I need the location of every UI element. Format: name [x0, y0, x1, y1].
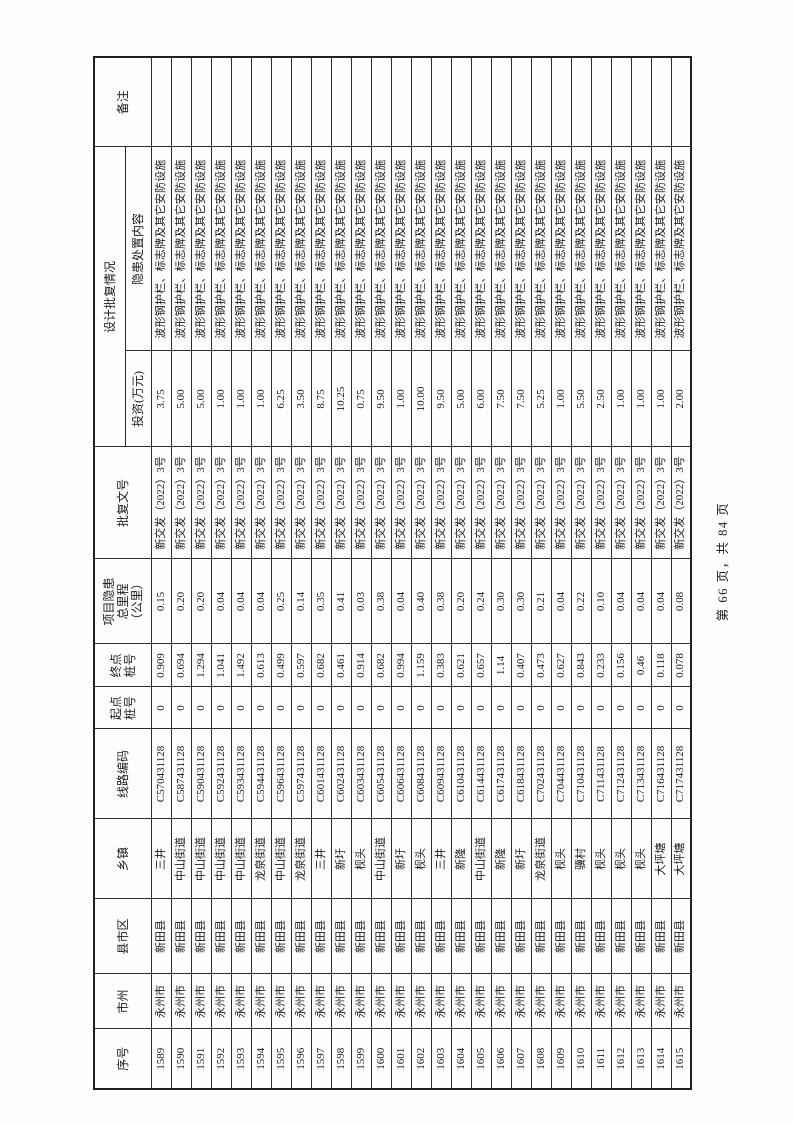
- cell-invest: 1.00: [391, 351, 411, 447]
- cell-start: 0: [471, 687, 491, 729]
- cell-code: C594431128: [251, 729, 271, 819]
- cell-town: 中山街道: [271, 819, 291, 899]
- cell-city: 永州市: [451, 974, 471, 1029]
- cell-doc: 新交发（2022）3号: [351, 447, 371, 559]
- table-row: 1593永州市新田县中山街道C59343112801.4920.04新交发（20…: [231, 57, 251, 1089]
- cell-invest: 9.50: [371, 351, 391, 447]
- cell-doc: 新交发（2022）3号: [371, 447, 391, 559]
- cell-no: 1613: [631, 1029, 651, 1089]
- cell-code: C618431128: [511, 729, 531, 819]
- cell-end: 1.159: [411, 644, 431, 687]
- cell-remark: [411, 57, 431, 147]
- cell-end: 0.078: [671, 644, 691, 687]
- cell-mileage: 0.08: [671, 559, 691, 644]
- cell-end: 0.657: [471, 644, 491, 687]
- cell-code: C570431128: [151, 729, 171, 819]
- cell-invest: 5.00: [451, 351, 471, 447]
- cell-county: 新田县: [631, 899, 651, 974]
- cell-city: 永州市: [311, 974, 331, 1029]
- cell-doc: 新交发（2022）3号: [411, 447, 431, 559]
- cell-mileage: 0.04: [551, 559, 571, 644]
- cell-code: C609431128: [431, 729, 451, 819]
- cell-no: 1611: [591, 1029, 611, 1089]
- cell-no: 1602: [411, 1029, 431, 1089]
- cell-start: 0: [451, 687, 471, 729]
- cell-town: 枧头: [591, 819, 611, 899]
- cell-invest: 8.75: [311, 351, 331, 447]
- cell-mileage: 0.04: [391, 559, 411, 644]
- cell-end: 0.843: [571, 644, 591, 687]
- cell-end: 0.682: [371, 644, 391, 687]
- cell-remark: [191, 57, 211, 147]
- cell-content: 波形钢护栏、标志牌及其它安防设施: [371, 147, 391, 351]
- cell-code: C597431128: [291, 729, 311, 819]
- cell-invest: 5.25: [531, 351, 551, 447]
- cell-no: 1598: [331, 1029, 351, 1089]
- cell-remark: [651, 57, 671, 147]
- cell-content: 波形钢护栏、标志牌及其它安防设施: [551, 147, 571, 351]
- table-row: 1590永州市新田县中山街道C58743112800.6940.20新交发（20…: [171, 57, 191, 1089]
- cell-county: 新田县: [271, 899, 291, 974]
- cell-code: C587431128: [171, 729, 191, 819]
- cell-code: C711431128: [591, 729, 611, 819]
- table-row: 1591永州市新田县中山街道C59043112801.2940.20新交发（20…: [191, 57, 211, 1089]
- cell-town: 新隆: [451, 819, 471, 899]
- cell-end: 0.461: [331, 644, 351, 687]
- cell-city: 永州市: [291, 974, 311, 1029]
- cell-content: 波形钢护栏、标志牌及其它安防设施: [411, 147, 431, 351]
- col-header-county: 县市区: [94, 899, 151, 974]
- cell-no: 1606: [491, 1029, 511, 1089]
- cell-city: 永州市: [151, 974, 171, 1029]
- table-row: 1602永州市新田县枧头C60843112801.1590.40新交发（2022…: [411, 57, 431, 1089]
- cell-doc: 新交发（2022）3号: [431, 447, 451, 559]
- table-body: 1589永州市新田县三井C57043112800.9090.15新交发（2022…: [151, 57, 691, 1089]
- cell-code: C592431128: [211, 729, 231, 819]
- cell-no: 1597: [311, 1029, 331, 1089]
- cell-town: 枧头: [631, 819, 651, 899]
- cell-city: 永州市: [251, 974, 271, 1029]
- cell-town: 中山街道: [191, 819, 211, 899]
- cell-no: 1604: [451, 1029, 471, 1089]
- cell-end: 0.473: [531, 644, 551, 687]
- cell-county: 新田县: [511, 899, 531, 974]
- cell-mileage: 0.25: [271, 559, 291, 644]
- cell-start: 0: [431, 687, 451, 729]
- cell-doc: 新交发（2022）3号: [551, 447, 571, 559]
- cell-code: C593431128: [231, 729, 251, 819]
- cell-content: 波形钢护栏、标志牌及其它安防设施: [271, 147, 291, 351]
- table-row: 1596永州市新田县龙泉街道C59743112800.5970.14新交发（20…: [291, 57, 311, 1089]
- cell-county: 新田县: [551, 899, 571, 974]
- cell-doc: 新交发（2022）3号: [571, 447, 591, 559]
- cell-invest: 1.00: [611, 351, 631, 447]
- cell-invest: 1.00: [551, 351, 571, 447]
- cell-city: 永州市: [231, 974, 251, 1029]
- cell-doc: 新交发（2022）3号: [531, 447, 551, 559]
- table-row: 1595永州市新田县中山街道C59643112800.4990.25新交发（20…: [271, 57, 291, 1089]
- cell-invest: 10.25: [331, 351, 351, 447]
- cell-remark: [151, 57, 171, 147]
- cell-remark: [331, 57, 351, 147]
- cell-code: C590431128: [191, 729, 211, 819]
- cell-invest: 1.00: [651, 351, 671, 447]
- cell-city: 永州市: [551, 974, 571, 1029]
- cell-county: 新田县: [531, 899, 551, 974]
- cell-content: 波形钢护栏、标志牌及其它安防设施: [451, 147, 471, 351]
- cell-start: 0: [231, 687, 251, 729]
- cell-county: 新田县: [251, 899, 271, 974]
- cell-city: 永州市: [331, 974, 351, 1029]
- col-header-end-stake: 终点 桩号: [94, 644, 151, 687]
- cell-code: C610431128: [451, 729, 471, 819]
- table-row: 1589永州市新田县三井C57043112800.9090.15新交发（2022…: [151, 57, 171, 1089]
- cell-start: 0: [411, 687, 431, 729]
- cell-city: 永州市: [411, 974, 431, 1029]
- cell-remark: [571, 57, 591, 147]
- cell-no: 1607: [511, 1029, 531, 1089]
- cell-county: 新田县: [491, 899, 511, 974]
- cell-end: 0.383: [431, 644, 451, 687]
- cell-mileage: 0.03: [351, 559, 371, 644]
- cell-end: 0.46: [631, 644, 651, 687]
- col-header-serial: 序号: [94, 1029, 151, 1089]
- cell-no: 1594: [251, 1029, 271, 1089]
- cell-invest: 1.00: [251, 351, 271, 447]
- cell-city: 永州市: [171, 974, 191, 1029]
- cell-remark: [211, 57, 231, 147]
- cell-code: C608431128: [411, 729, 431, 819]
- cell-end: 0.118: [651, 644, 671, 687]
- cell-town: 新隆: [491, 819, 511, 899]
- cell-invest: 1.00: [631, 351, 651, 447]
- cell-no: 1601: [391, 1029, 411, 1089]
- table-row: 1614永州市新田县大坪塘C71643112800.1180.04新交发（202…: [651, 57, 671, 1089]
- cell-county: 新田县: [311, 899, 331, 974]
- cell-content: 波形钢护栏、标志牌及其它安防设施: [191, 147, 211, 351]
- cell-mileage: 0.04: [211, 559, 231, 644]
- cell-mileage: 0.10: [591, 559, 611, 644]
- cell-doc: 新交发（2022）3号: [311, 447, 331, 559]
- cell-start: 0: [371, 687, 391, 729]
- cell-doc: 新交发（2022）3号: [511, 447, 531, 559]
- cell-town: 中山街道: [371, 819, 391, 899]
- table-row: 1611永州市新田县枧头C71143112800.2330.10新交发（2022…: [591, 57, 611, 1089]
- cell-end: 1.041: [211, 644, 231, 687]
- cell-start: 0: [351, 687, 371, 729]
- cell-mileage: 0.20: [451, 559, 471, 644]
- cell-content: 波形钢护栏、标志牌及其它安防设施: [311, 147, 331, 351]
- cell-start: 0: [251, 687, 271, 729]
- cell-invest: 1.00: [211, 351, 231, 447]
- cell-end: 0.694: [171, 644, 191, 687]
- col-header-approval-doc: 批复文号: [94, 447, 151, 559]
- cell-no: 1590: [171, 1029, 191, 1089]
- cell-start: 0: [211, 687, 231, 729]
- cell-invest: 6.25: [271, 351, 291, 447]
- cell-content: 波形钢护栏、标志牌及其它安防设施: [431, 147, 451, 351]
- cell-city: 永州市: [611, 974, 631, 1029]
- cell-mileage: 0.30: [491, 559, 511, 644]
- cell-end: 0.499: [271, 644, 291, 687]
- cell-remark: [311, 57, 331, 147]
- cell-invest: 10.00: [411, 351, 431, 447]
- cell-city: 永州市: [371, 974, 391, 1029]
- cell-town: 新圩: [511, 819, 531, 899]
- table-row: 1607永州市新田县新圩C61843112800.4070.30新交发（2022…: [511, 57, 531, 1089]
- cell-content: 波形钢护栏、标志牌及其它安防设施: [671, 147, 691, 351]
- cell-start: 0: [511, 687, 531, 729]
- cell-city: 永州市: [671, 974, 691, 1029]
- cell-content: 波形钢护栏、标志牌及其它安防设施: [611, 147, 631, 351]
- cell-end: 0.914: [351, 644, 371, 687]
- cell-no: 1591: [191, 1029, 211, 1089]
- cell-end: 0.994: [391, 644, 411, 687]
- cell-no: 1608: [531, 1029, 551, 1089]
- cell-invest: 5.00: [171, 351, 191, 447]
- cell-remark: [551, 57, 571, 147]
- cell-code: C614431128: [471, 729, 491, 819]
- table-row: 1599永州市新田县枧头C60343112800.9140.03新交发（2022…: [351, 57, 371, 1089]
- cell-start: 0: [571, 687, 591, 729]
- cell-start: 0: [331, 687, 351, 729]
- cell-remark: [471, 57, 491, 147]
- cell-county: 新田县: [211, 899, 231, 974]
- cell-code: C606431128: [391, 729, 411, 819]
- cell-start: 0: [611, 687, 631, 729]
- cell-city: 永州市: [211, 974, 231, 1029]
- cell-county: 新田县: [651, 899, 671, 974]
- table-row: 1605永州市新田县中山街道C61443112800.6570.24新交发（20…: [471, 57, 491, 1089]
- col-header-route-code: 线路编码: [94, 729, 151, 819]
- cell-city: 永州市: [571, 974, 591, 1029]
- col-header-remark: 备注: [94, 57, 151, 147]
- cell-county: 新田县: [391, 899, 411, 974]
- table-header: 序号 市州 县市区 乡镇 线路编码 起点 桩号 终点 桩号 项目隐患 总里程 （…: [94, 57, 151, 1089]
- cell-no: 1603: [431, 1029, 451, 1089]
- cell-code: C596431128: [271, 729, 291, 819]
- cell-town: 龙泉街道: [291, 819, 311, 899]
- cell-remark: [291, 57, 311, 147]
- cell-town: 龙泉街道: [531, 819, 551, 899]
- cell-invest: 2.50: [591, 351, 611, 447]
- cell-code: C602431128: [331, 729, 351, 819]
- cell-start: 0: [551, 687, 571, 729]
- cell-mileage: 0.24: [471, 559, 491, 644]
- cell-county: 新田县: [671, 899, 691, 974]
- cell-county: 新田县: [411, 899, 431, 974]
- cell-content: 波形钢护栏、标志牌及其它安防设施: [211, 147, 231, 351]
- table-row: 1594永州市新田县龙泉街道C59443112800.6130.04新交发（20…: [251, 57, 271, 1089]
- cell-doc: 新交发（2022）3号: [491, 447, 511, 559]
- cell-city: 永州市: [351, 974, 371, 1029]
- cell-invest: 1.00: [231, 351, 251, 447]
- cell-town: 中山街道: [231, 819, 251, 899]
- cell-remark: [491, 57, 511, 147]
- cell-remark: [171, 57, 191, 147]
- page-number-footer: 第 66 页，共 84 页: [712, 0, 731, 1123]
- col-header-town: 乡镇: [94, 819, 151, 899]
- cell-start: 0: [291, 687, 311, 729]
- cell-content: 波形钢护栏、标志牌及其它安防设施: [531, 147, 551, 351]
- cell-doc: 新交发（2022）3号: [251, 447, 271, 559]
- cell-end: 1.492: [231, 644, 251, 687]
- cell-county: 新田县: [591, 899, 611, 974]
- table-row: 1603永州市新田县三井C60943112800.3830.38新交发（2022…: [431, 57, 451, 1089]
- cell-city: 永州市: [531, 974, 551, 1029]
- cell-end: 0.909: [151, 644, 171, 687]
- cell-content: 波形钢护栏、标志牌及其它安防设施: [651, 147, 671, 351]
- cell-start: 0: [651, 687, 671, 729]
- cell-remark: [591, 57, 611, 147]
- cell-remark: [631, 57, 651, 147]
- cell-end: 1.14: [491, 644, 511, 687]
- cell-start: 0: [171, 687, 191, 729]
- cell-county: 新田县: [371, 899, 391, 974]
- cell-code: C617431128: [491, 729, 511, 819]
- cell-remark: [231, 57, 251, 147]
- table-row: 1600永州市新田县中山街道C60543112800.6820.38新交发（20…: [371, 57, 391, 1089]
- cell-no: 1592: [211, 1029, 231, 1089]
- cell-doc: 新交发（2022）3号: [291, 447, 311, 559]
- cell-mileage: 0.38: [431, 559, 451, 644]
- cell-town: 大坪塘: [651, 819, 671, 899]
- cell-remark: [431, 57, 451, 147]
- cell-content: 波形钢护栏、标志牌及其它安防设施: [171, 147, 191, 351]
- cell-invest: 7.50: [491, 351, 511, 447]
- cell-start: 0: [391, 687, 411, 729]
- cell-end: 0.407: [511, 644, 531, 687]
- table-row: 1615永州市新田县大坪塘C71743112800.0780.08新交发（202…: [671, 57, 691, 1089]
- cell-mileage: 0.04: [231, 559, 251, 644]
- cell-city: 永州市: [651, 974, 671, 1029]
- cell-content: 波形钢护栏、标志牌及其它安防设施: [591, 147, 611, 351]
- cell-content: 波形钢护栏、标志牌及其它安防设施: [511, 147, 531, 351]
- cell-mileage: 0.30: [511, 559, 531, 644]
- cell-content: 波形钢护栏、标志牌及其它安防设施: [571, 147, 591, 351]
- cell-county: 新田县: [151, 899, 171, 974]
- cell-no: 1615: [671, 1029, 691, 1089]
- cell-remark: [671, 57, 691, 147]
- cell-city: 永州市: [511, 974, 531, 1029]
- cell-no: 1593: [231, 1029, 251, 1089]
- cell-city: 永州市: [471, 974, 491, 1029]
- cell-city: 永州市: [591, 974, 611, 1029]
- cell-end: 0.613: [251, 644, 271, 687]
- col-header-investment: 投资(万元): [125, 351, 151, 447]
- table-row: 1604永州市新田县新隆C61043112800.6210.20新交发（2022…: [451, 57, 471, 1089]
- cell-content: 波形钢护栏、标志牌及其它安防设施: [251, 147, 271, 351]
- cell-town: 枧头: [611, 819, 631, 899]
- cell-remark: [251, 57, 271, 147]
- cell-start: 0: [631, 687, 651, 729]
- cell-code: C601431128: [311, 729, 331, 819]
- cell-content: 波形钢护栏、标志牌及其它安防设施: [471, 147, 491, 351]
- cell-town: 大坪塘: [671, 819, 691, 899]
- rotated-landscape-sheet: 序号 市州 县市区 乡镇 线路编码 起点 桩号 终点 桩号 项目隐患 总里程 （…: [0, 0, 793, 1123]
- col-header-start-stake: 起点 桩号: [94, 687, 151, 729]
- cell-invest: 2.00: [671, 351, 691, 447]
- cell-mileage: 0.20: [171, 559, 191, 644]
- cell-code: C603431128: [351, 729, 371, 819]
- cell-mileage: 0.38: [371, 559, 391, 644]
- cell-doc: 新交发（2022）3号: [191, 447, 211, 559]
- table-row: 1610永州市新田县骥村C71043112800.8430.22新交发（2022…: [571, 57, 591, 1089]
- cell-mileage: 0.04: [251, 559, 271, 644]
- cell-doc: 新交发（2022）3号: [611, 447, 631, 559]
- cell-remark: [611, 57, 631, 147]
- cell-start: 0: [191, 687, 211, 729]
- cell-content: 波形钢护栏、标志牌及其它安防设施: [491, 147, 511, 351]
- cell-doc: 新交发（2022）3号: [211, 447, 231, 559]
- cell-town: 中山街道: [171, 819, 191, 899]
- cell-city: 永州市: [431, 974, 451, 1029]
- cell-no: 1600: [371, 1029, 391, 1089]
- cell-code: C717431128: [671, 729, 691, 819]
- cell-invest: 3.50: [291, 351, 311, 447]
- cell-content: 波形钢护栏、标志牌及其它安防设施: [151, 147, 171, 351]
- cell-start: 0: [531, 687, 551, 729]
- cell-mileage: 0.04: [651, 559, 671, 644]
- cell-content: 波形钢护栏、标志牌及其它安防设施: [351, 147, 371, 351]
- col-header-design-approval-group: 设计批复情况: [94, 147, 125, 447]
- cell-code: C716431128: [651, 729, 671, 819]
- cell-county: 新田县: [331, 899, 351, 974]
- cell-doc: 新交发（2022）3号: [651, 447, 671, 559]
- cell-town: 新圩: [391, 819, 411, 899]
- cell-content: 波形钢护栏、标志牌及其它安防设施: [291, 147, 311, 351]
- cell-town: 枧头: [351, 819, 371, 899]
- cell-mileage: 0.40: [411, 559, 431, 644]
- cell-code: C713431128: [631, 729, 651, 819]
- header-row-1: 序号 市州 县市区 乡镇 线路编码 起点 桩号 终点 桩号 项目隐患 总里程 （…: [94, 57, 125, 1089]
- cell-content: 波形钢护栏、标志牌及其它安防设施: [631, 147, 651, 351]
- cell-doc: 新交发（2022）3号: [471, 447, 491, 559]
- cell-mileage: 0.41: [331, 559, 351, 644]
- cell-remark: [371, 57, 391, 147]
- cell-county: 新田县: [611, 899, 631, 974]
- cell-town: 中山街道: [211, 819, 231, 899]
- cell-county: 新田县: [291, 899, 311, 974]
- cell-code: C605431128: [371, 729, 391, 819]
- cell-doc: 新交发（2022）3号: [671, 447, 691, 559]
- cell-start: 0: [271, 687, 291, 729]
- cell-town: 新圩: [331, 819, 351, 899]
- cell-mileage: 0.22: [571, 559, 591, 644]
- cell-doc: 新交发（2022）3号: [231, 447, 251, 559]
- cell-mileage: 0.04: [631, 559, 651, 644]
- cell-start: 0: [311, 687, 331, 729]
- cell-no: 1612: [611, 1029, 631, 1089]
- cell-doc: 新交发（2022）3号: [451, 447, 471, 559]
- cell-no: 1605: [471, 1029, 491, 1089]
- cell-start: 0: [671, 687, 691, 729]
- table-row: 1608永州市新田县龙泉街道C70243112800.4730.21新交发（20…: [531, 57, 551, 1089]
- table-row: 1613永州市新田县枧头C71343112800.460.04新交发（2022）…: [631, 57, 651, 1089]
- cell-code: C712431128: [611, 729, 631, 819]
- cell-mileage: 0.14: [291, 559, 311, 644]
- cell-town: 中山街道: [471, 819, 491, 899]
- table-row: 1598永州市新田县新圩C60243112800.4610.41新交发（2022…: [331, 57, 351, 1089]
- cell-code: C702431128: [531, 729, 551, 819]
- cell-code: C704431128: [551, 729, 571, 819]
- cell-remark: [451, 57, 471, 147]
- cell-no: 1589: [151, 1029, 171, 1089]
- cell-invest: 5.50: [571, 351, 591, 447]
- table-row: 1592永州市新田县中山街道C59243112801.0410.04新交发（20…: [211, 57, 231, 1089]
- cell-no: 1610: [571, 1029, 591, 1089]
- cell-end: 0.233: [591, 644, 611, 687]
